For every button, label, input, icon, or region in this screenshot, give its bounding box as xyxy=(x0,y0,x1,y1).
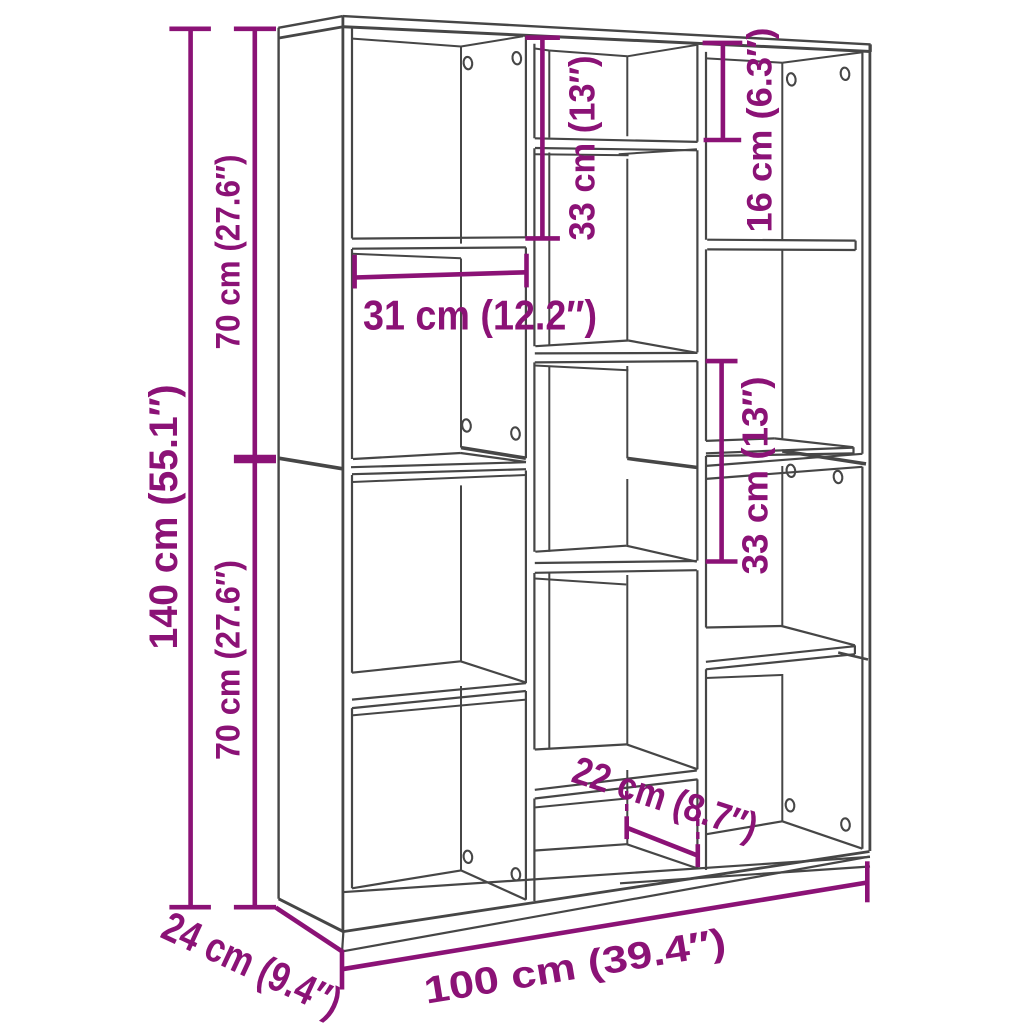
svg-text:33 cm (13″): 33 cm (13″) xyxy=(562,56,603,241)
svg-text:70 cm (27.6″): 70 cm (27.6″) xyxy=(210,560,248,760)
svg-text:140 cm (55.1″): 140 cm (55.1″) xyxy=(142,385,186,650)
svg-text:33 cm (13″): 33 cm (13″) xyxy=(735,377,776,575)
svg-text:70 cm (27.6″): 70 cm (27.6″) xyxy=(210,155,248,350)
svg-text:16 cm (6.3″): 16 cm (6.3″) xyxy=(741,28,780,233)
svg-text:31 cm (12.2″): 31 cm (12.2″) xyxy=(363,292,597,339)
